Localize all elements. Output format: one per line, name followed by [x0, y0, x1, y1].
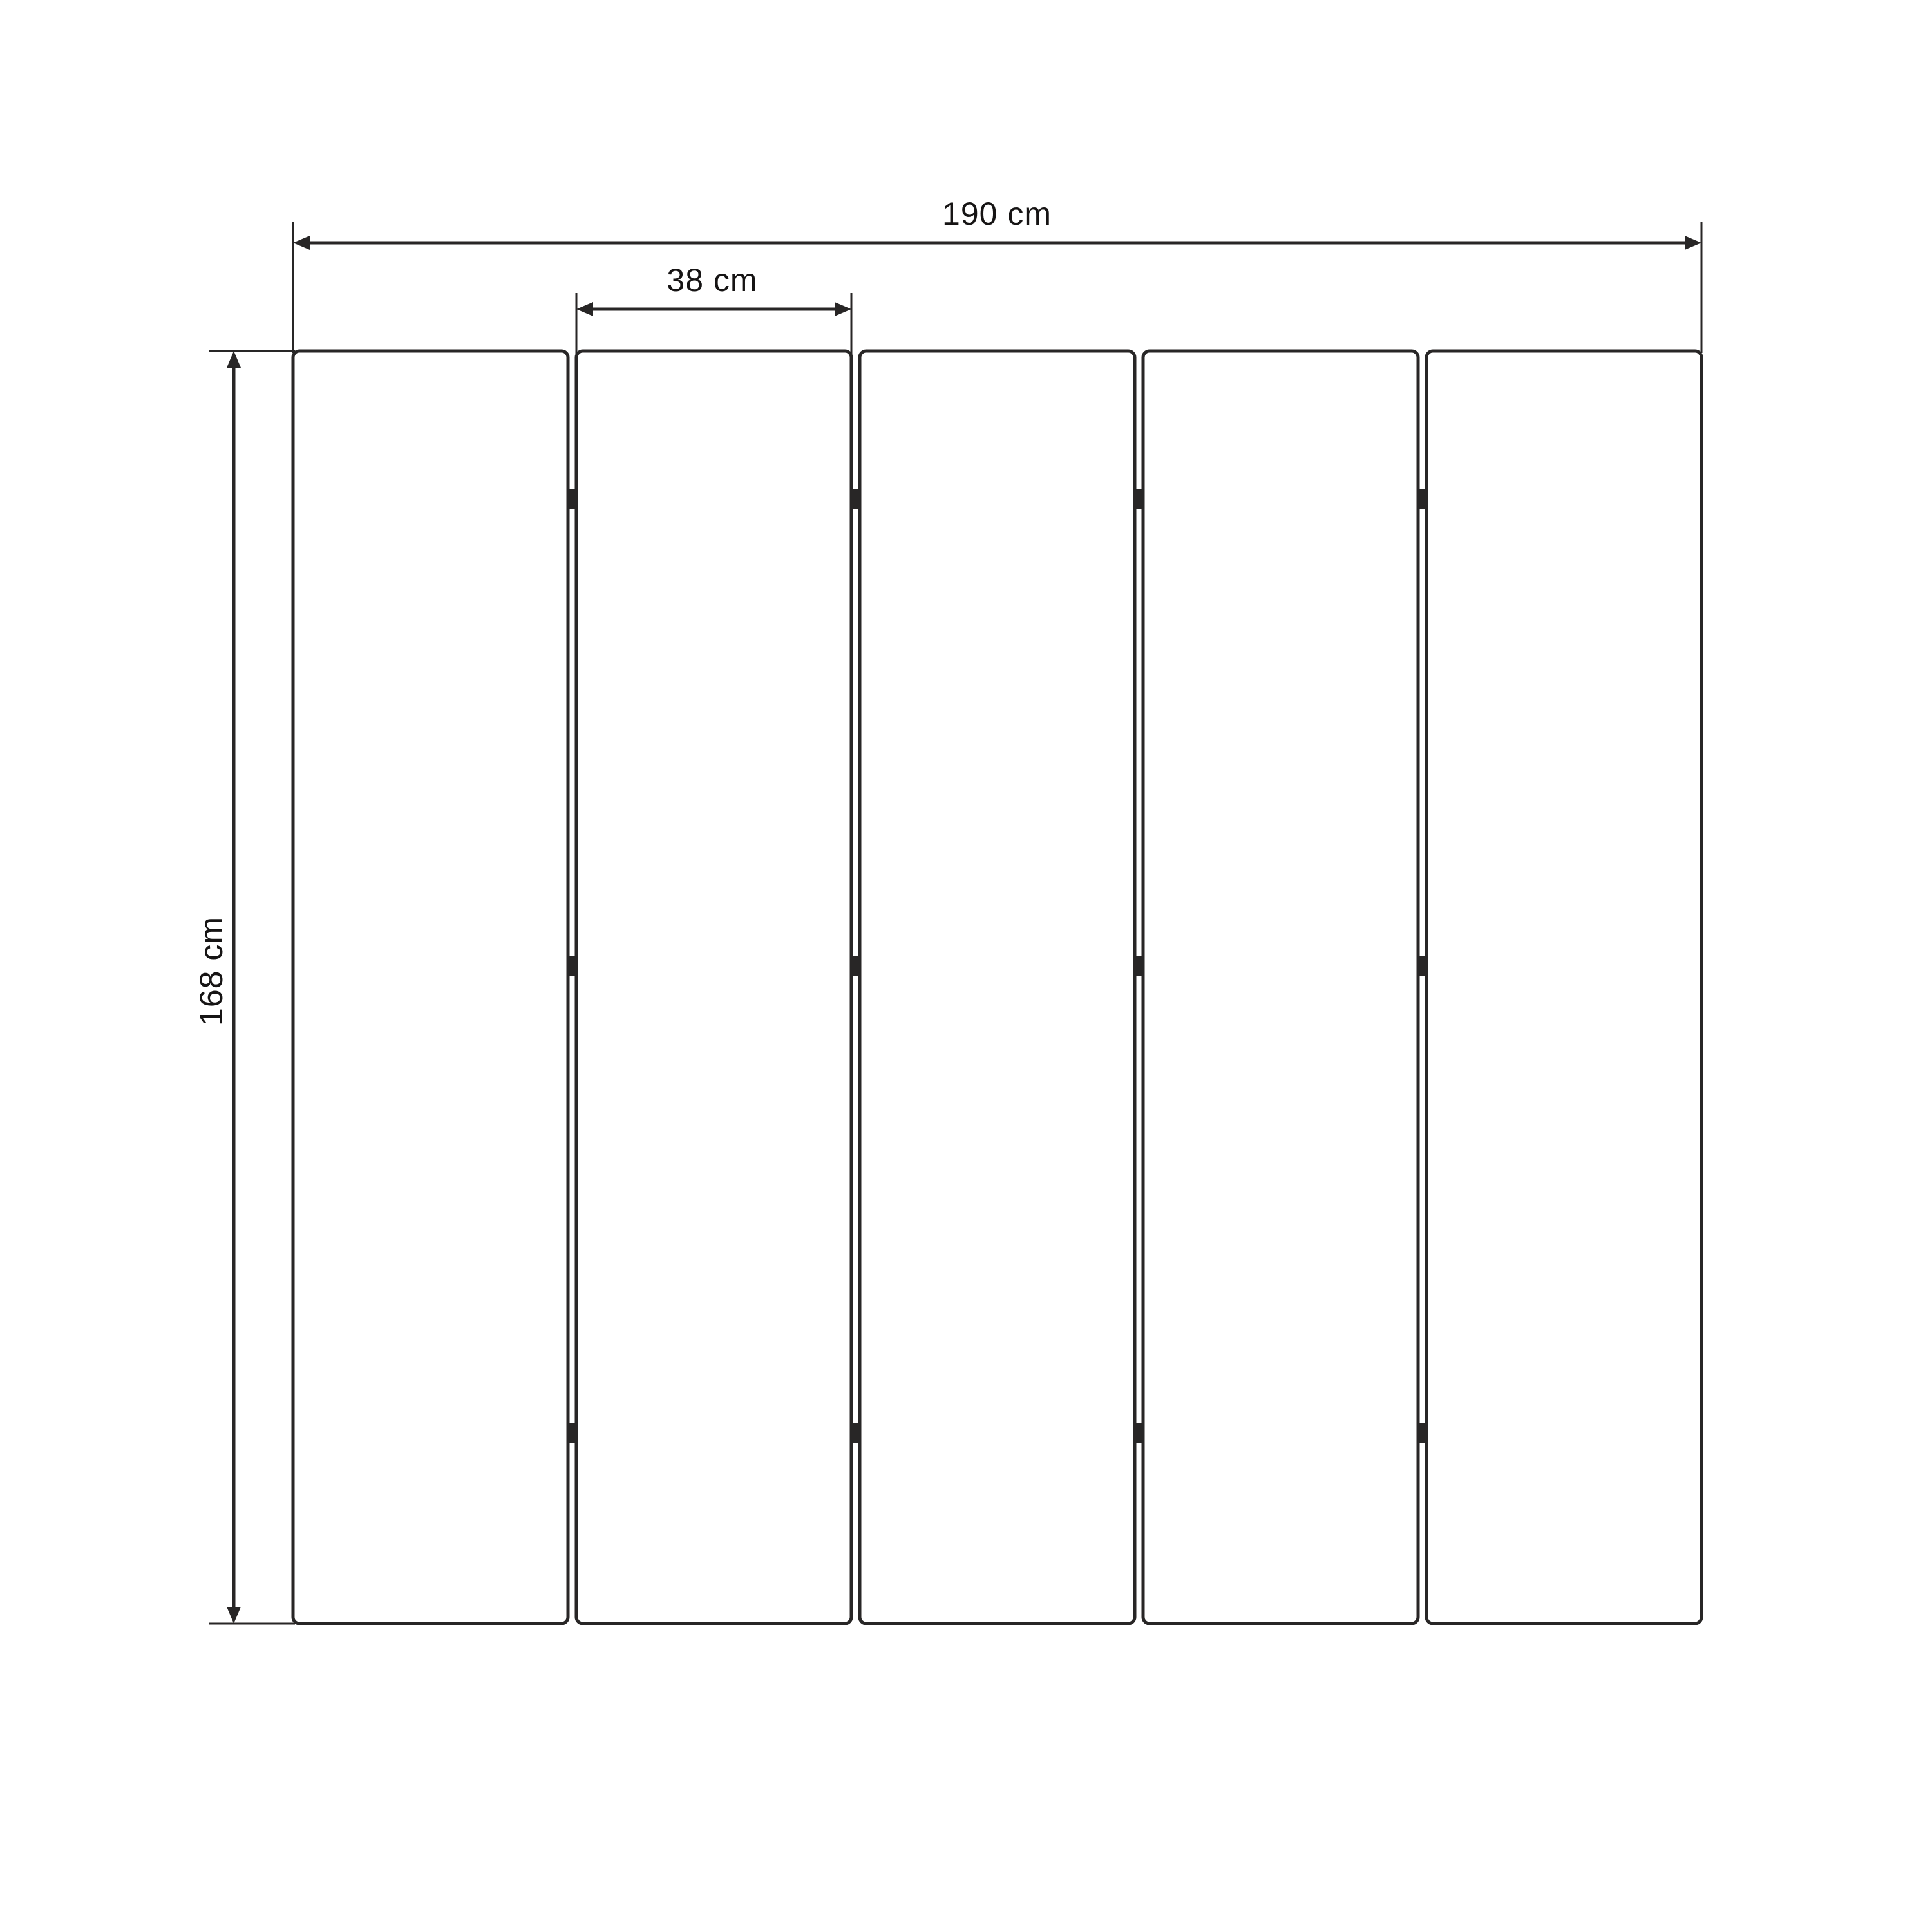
arrow-down-icon	[227, 1607, 241, 1624]
dimension-height: 168 cm	[193, 351, 295, 1624]
hinge-marker	[569, 1423, 576, 1443]
hinge-marker	[1135, 489, 1143, 509]
hinge-marker	[569, 956, 576, 976]
total-width-label: 190 cm	[942, 196, 1052, 232]
arrow-right-icon	[1685, 236, 1701, 250]
panel-3	[860, 351, 1135, 1624]
panel-width-label: 38 cm	[667, 262, 757, 298]
hinge-marker	[1419, 956, 1426, 976]
hinge-marker	[1419, 1423, 1426, 1443]
hinge-marker	[852, 1423, 860, 1443]
arrow-up-icon	[227, 351, 241, 368]
panel-5	[1426, 351, 1701, 1624]
panel-1	[293, 351, 568, 1624]
panel-4	[1143, 351, 1418, 1624]
panel-group	[293, 351, 1701, 1624]
hinge-marker	[852, 489, 860, 509]
hinge-marker	[1135, 956, 1143, 976]
arrow-right-icon	[835, 302, 851, 316]
hinge-marker	[1135, 1423, 1143, 1443]
panel-height-label: 168 cm	[193, 916, 229, 1026]
hinge-marker	[1419, 489, 1426, 509]
arrow-left-icon	[293, 236, 310, 250]
panel-2	[576, 351, 851, 1624]
dimension-panel-width: 38 cm	[576, 262, 851, 359]
hinge-marker	[569, 489, 576, 509]
arrow-left-icon	[576, 302, 593, 316]
dimension-drawing-canvas: 190 cm 38 cm 168 cm	[0, 0, 1932, 1932]
dimension-total-width: 190 cm	[293, 196, 1701, 353]
hinge-marker	[852, 956, 860, 976]
folding-screen-diagram: 190 cm 38 cm 168 cm	[0, 0, 1932, 1932]
